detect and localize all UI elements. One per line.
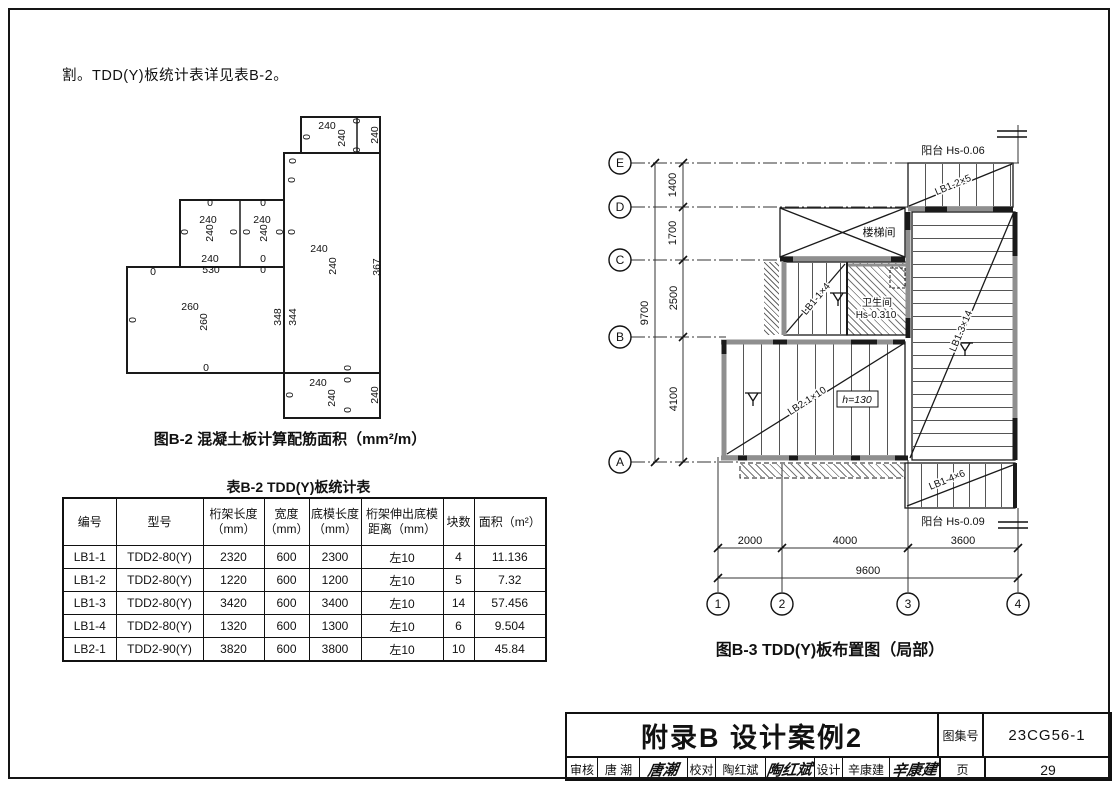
bathroom-label: 卫生间: [862, 296, 892, 309]
col-header: 桁架长度 （mm）: [203, 498, 264, 546]
cell: 57.456: [474, 592, 546, 615]
grid-bubble-1: 1: [715, 597, 722, 611]
rebar-value: 0: [286, 229, 298, 235]
rebar-value: 0: [342, 377, 354, 383]
dim-2000: 2000: [738, 535, 762, 547]
rebar-value: 0: [286, 177, 298, 183]
col-header: 编号: [63, 498, 116, 546]
check-name: 陶红斌: [715, 758, 765, 781]
cell: 600: [264, 546, 309, 569]
col-header: 宽度 （mm）: [264, 498, 309, 546]
stairwell-label: 楼梯间: [863, 225, 896, 239]
cell: LB1-1: [63, 546, 116, 569]
panel-label-lb1-3: LB1-3×14: [948, 309, 975, 354]
check-label: 校对: [687, 758, 715, 781]
cell: 3800: [309, 638, 361, 662]
cell: 600: [264, 592, 309, 615]
panel-label-lb2-1: LB2-1×10: [786, 385, 829, 418]
rebar-value: 0: [203, 362, 209, 374]
cell: TDD2-80(Y): [116, 592, 203, 615]
cell: 1200: [309, 569, 361, 592]
review-label: 审核: [567, 758, 597, 781]
cell: TDD2-90(Y): [116, 638, 203, 662]
cell: 4: [443, 546, 474, 569]
table-b2-title: 表B-2 TDD(Y)板统计表: [62, 477, 535, 497]
atlas-page: 割。TDD(Y)板统计表详见表B-2。 0 240 240 0 0 240 0 …: [0, 0, 1120, 789]
dim-4100: 4100: [668, 387, 680, 411]
grid-bubble-4: 4: [1015, 597, 1022, 611]
title-block-row1: 附录B 设计案例2 图集号 23CG56-1: [567, 714, 1110, 758]
rebar-value: 240: [258, 224, 270, 242]
cell: 11.136: [474, 546, 546, 569]
table-row: LB1-3TDD2-80(Y)34206003400左101457.456: [63, 592, 546, 615]
grid-bubble-A: A: [616, 455, 624, 469]
grid-bubble-2: 2: [779, 597, 786, 611]
cell: LB1-3: [63, 592, 116, 615]
rebar-value: 240: [310, 243, 328, 255]
rebar-value: 0: [351, 118, 363, 124]
cell: TDD2-80(Y): [116, 569, 203, 592]
cell: TDD2-80(Y): [116, 546, 203, 569]
cell: 1320: [203, 615, 264, 638]
cell: 左10: [361, 615, 443, 638]
rebar-value: 0: [150, 266, 156, 278]
balcony-bottom-label: 阳台 Hs-0.09: [921, 514, 985, 528]
cell: 3820: [203, 638, 264, 662]
col-header: 面积（m²）: [474, 498, 546, 546]
table-row: LB1-4TDD2-80(Y)13206001300左1069.504: [63, 615, 546, 638]
cell: TDD2-80(Y): [116, 615, 203, 638]
cell: LB1-2: [63, 569, 116, 592]
col-header: 型号: [116, 498, 203, 546]
dim-9700: 9700: [639, 301, 651, 325]
title-block: 附录B 设计案例2 图集号 23CG56-1 审核 唐 潮 唐潮 校对 陶红斌 …: [565, 712, 1112, 781]
cell: 14: [443, 592, 474, 615]
cell: 600: [264, 569, 309, 592]
check-signature: 陶红斌: [766, 758, 814, 781]
rebar-value: 0: [287, 158, 299, 164]
cell: 600: [264, 615, 309, 638]
cell: 左10: [361, 569, 443, 592]
rebar-value: 240: [204, 224, 216, 242]
page-number: 29: [984, 758, 1110, 781]
figure-b3-caption: 图B-3 TDD(Y)板布置图（局部）: [595, 636, 1065, 660]
cell: 6: [443, 615, 474, 638]
figure-b2-caption: 图B-2 混凝土板计算配筋面积（mm²/m）: [105, 428, 475, 449]
rebar-value: 344: [287, 308, 299, 326]
cell: 2300: [309, 546, 361, 569]
rebar-value: 240: [309, 377, 327, 389]
cell: 左10: [361, 592, 443, 615]
cell: LB1-4: [63, 615, 116, 638]
cell: 3420: [203, 592, 264, 615]
grid-bubble-E: E: [616, 156, 624, 170]
sheet-title: 附录B 设计案例2: [567, 714, 937, 756]
cell: 9.504: [474, 615, 546, 638]
panel-label-lb1-4: LB1-4×6: [927, 468, 967, 493]
balcony-top-label: 阳台 Hs-0.06: [921, 143, 985, 157]
table-row: LB1-1TDD2-80(Y)23206002300左10411.136: [63, 546, 546, 569]
rebar-value: 530: [202, 264, 220, 276]
panel-label-lb1-1: LB1-1×4: [800, 281, 833, 318]
cell: 5: [443, 569, 474, 592]
col-header: 底模长度 （mm）: [309, 498, 361, 546]
col-header: 块数: [443, 498, 474, 546]
grid-bubble-C: C: [616, 253, 625, 267]
dim-1400: 1400: [667, 173, 679, 197]
rebar-value: 367: [371, 258, 383, 276]
dim-3600: 3600: [951, 535, 975, 547]
table-row: LB2-1TDD2-90(Y)38206003800左101045.84: [63, 638, 546, 662]
review-name: 唐 潮: [597, 758, 639, 781]
height-note: h=130: [842, 394, 872, 406]
rebar-value: 0: [301, 134, 313, 140]
rebar-value: 348: [272, 308, 284, 326]
design-name: 辛康建: [842, 758, 889, 781]
rebar-value: 240: [326, 389, 338, 407]
bathroom-level-label: Hs-0.310: [856, 310, 897, 321]
grid-bubble-3: 3: [905, 597, 912, 611]
grid-bubble-D: D: [616, 200, 625, 214]
dim-9600: 9600: [856, 565, 880, 577]
rebar-value: 0: [228, 229, 240, 235]
atlas-number: 23CG56-1: [982, 714, 1110, 756]
table-header-row: 编号 型号 桁架长度 （mm） 宽度 （mm） 底模长度 （mm） 桁架伸出底模…: [63, 498, 546, 546]
cell: 左10: [361, 638, 443, 662]
plan-drawing: E D C B A 1 2 3 4 1400 1700 2500 4100 97…: [595, 118, 1065, 623]
intro-text: 割。TDD(Y)板统计表详见表B-2。: [62, 64, 288, 85]
rebar-value: 0: [342, 407, 354, 413]
rebar-value: 240: [369, 386, 381, 404]
cell: 1300: [309, 615, 361, 638]
title-block-row2: 审核 唐 潮 唐潮 校对 陶红斌 陶红斌 设计 辛康建 辛康建 页 29: [567, 758, 1110, 781]
cell: 10: [443, 638, 474, 662]
rebar-value: 240: [336, 129, 348, 147]
rebar-value: 0: [260, 264, 266, 276]
table-row: LB1-2TDD2-80(Y)12206001200左1057.32: [63, 569, 546, 592]
rebar-value: 0: [179, 229, 191, 235]
rebar-value: 0: [260, 197, 266, 209]
page-label: 页: [939, 758, 984, 781]
rebar-value: 0: [284, 392, 296, 398]
rebar-value: 0: [241, 229, 253, 235]
design-signature: 辛康建: [890, 758, 938, 781]
dim-2500: 2500: [668, 286, 680, 310]
rebar-value: 240: [327, 257, 339, 275]
cell: 1220: [203, 569, 264, 592]
col-header: 桁架伸出底模 距离（mm）: [361, 498, 443, 546]
rebar-value: 260: [198, 313, 210, 331]
figure-b2-diagram: 0 240 240 0 0 240 0 0 240 240 367 0 240 …: [110, 100, 410, 440]
figure-b3-plan: E D C B A 1 2 3 4 1400 1700 2500 4100 97…: [595, 118, 1065, 623]
table-b2: 编号 型号 桁架长度 （mm） 宽度 （mm） 底模长度 （mm） 桁架伸出底模…: [62, 497, 547, 662]
rebar-value: 260: [181, 301, 199, 313]
design-label: 设计: [814, 758, 842, 781]
rebar-value: 0: [127, 317, 139, 323]
cell: 45.84: [474, 638, 546, 662]
rebar-value: 0: [207, 197, 213, 209]
dim-4000: 4000: [833, 535, 857, 547]
rebar-value: 240: [369, 126, 381, 144]
cell: 左10: [361, 546, 443, 569]
rebar-value: 0: [351, 147, 363, 153]
rebar-value: 240: [318, 120, 336, 132]
cell: 600: [264, 638, 309, 662]
cell: LB2-1: [63, 638, 116, 662]
grid-bubble-B: B: [616, 330, 624, 344]
cell: 2320: [203, 546, 264, 569]
panel-label-lb1-2: LB1-2×5: [934, 173, 974, 198]
rebar-value: 0: [274, 229, 286, 235]
dim-1700: 1700: [667, 221, 679, 245]
rebar-value: 0: [342, 365, 354, 371]
cell: 3400: [309, 592, 361, 615]
atlas-number-label: 图集号: [937, 714, 982, 756]
cell: 7.32: [474, 569, 546, 592]
review-signature: 唐潮: [647, 758, 680, 780]
